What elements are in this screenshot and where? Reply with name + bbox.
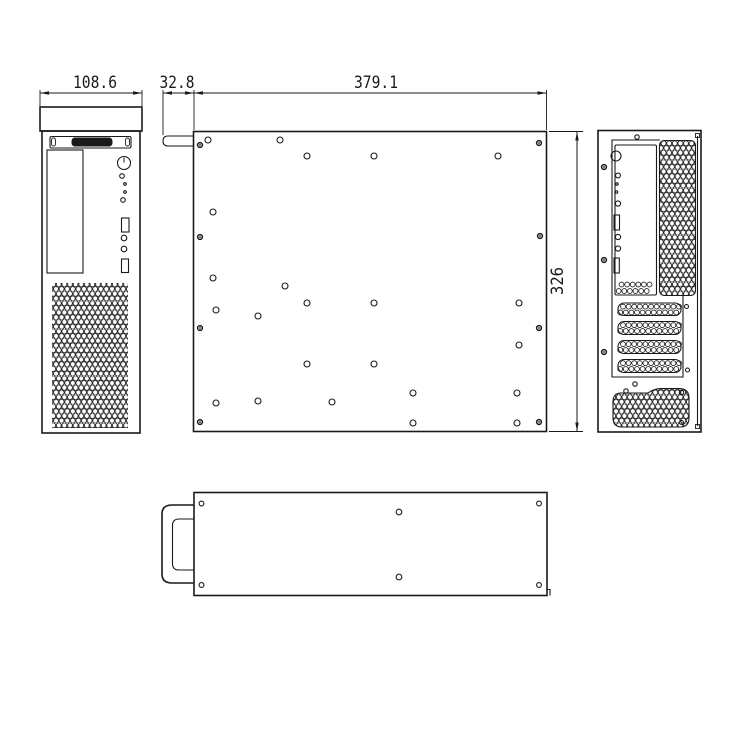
slot-vent-hole xyxy=(646,367,651,372)
slot-vent-hole xyxy=(663,310,668,315)
io-vent-hole xyxy=(625,282,630,287)
dimension-arrow xyxy=(133,91,142,94)
slot-vent-hole xyxy=(668,348,673,353)
chassis-orthographic-drawing: DIVAR108.632.8379.1326 xyxy=(0,0,750,750)
slot-vent-hole xyxy=(657,310,662,315)
slot-vent-hole xyxy=(649,323,654,328)
slot-vent-hole xyxy=(674,367,679,372)
slot-vent-hole xyxy=(629,348,634,353)
io-connector-cutout xyxy=(615,234,620,239)
slot-vent-hole xyxy=(654,342,659,347)
mounting-hole xyxy=(304,300,310,306)
slot-vent-hole xyxy=(651,329,656,334)
dimension-arrow xyxy=(575,132,578,141)
rivet-center xyxy=(199,144,201,146)
slot-vent-hole xyxy=(629,310,634,315)
dimension: 379.1 xyxy=(194,73,547,130)
slot-vent-hole xyxy=(663,329,668,334)
slot-vent-hole xyxy=(623,310,628,315)
dimension: 108.6 xyxy=(40,73,142,106)
io-panel xyxy=(615,145,657,295)
rivet-center xyxy=(199,327,201,329)
slot-vent-hole xyxy=(623,367,628,372)
rivet-center xyxy=(603,259,605,261)
io-vent-hole xyxy=(647,282,652,287)
mounting-hole xyxy=(210,275,216,281)
slot-vent-hole xyxy=(674,310,679,315)
mounting-hole xyxy=(514,420,520,426)
io-connector-cutout xyxy=(615,246,620,251)
slot-vent-hole xyxy=(629,329,634,334)
rivet-center xyxy=(199,421,201,423)
usb-port xyxy=(122,259,129,273)
carry-handle-outer xyxy=(162,505,194,583)
mounting-hole xyxy=(210,209,216,215)
slot-vent-hole xyxy=(660,342,665,347)
slot-vent-hole xyxy=(643,304,648,309)
slot-screw-hole xyxy=(685,305,689,309)
mounting-hole xyxy=(329,399,335,405)
slot-vent-hole xyxy=(665,342,670,347)
dimension: 326 xyxy=(548,132,583,432)
dimension-arrow xyxy=(194,91,203,94)
mounting-hole xyxy=(213,400,219,406)
slot-vent-hole xyxy=(640,348,645,353)
slot-vent-hole xyxy=(660,361,665,366)
slot-vent-hole xyxy=(637,323,642,328)
slot-vent-hole xyxy=(651,348,656,353)
slot-vent-hole xyxy=(663,367,668,372)
slot-vent-hole xyxy=(671,304,676,309)
slot-vent-hole xyxy=(623,348,628,353)
dimension-label: 32.8 xyxy=(160,73,195,93)
mounting-hole xyxy=(304,153,310,159)
slot-vent-hole xyxy=(646,348,651,353)
mounting-hole xyxy=(255,313,261,319)
bottom-view xyxy=(162,493,550,596)
slot-vent-hole xyxy=(643,342,648,347)
led-indicator xyxy=(121,246,127,252)
slot-vent-hole xyxy=(646,329,651,334)
slot-vent-hole xyxy=(649,304,654,309)
slot-vent-hole xyxy=(663,348,668,353)
dimension-arrow xyxy=(538,91,547,94)
mounting-hole xyxy=(255,398,261,404)
slot-vent-hole xyxy=(671,342,676,347)
io-vent-hole xyxy=(622,289,627,294)
slot-vent-hole xyxy=(621,304,626,309)
io-connector-cutout xyxy=(615,201,620,206)
slot-vent-hole xyxy=(657,367,662,372)
dimension-arrow xyxy=(575,423,578,432)
slot-vent-hole xyxy=(671,361,676,366)
screw-hole xyxy=(635,135,639,139)
mounting-hole xyxy=(495,153,501,159)
io-vent-hole xyxy=(636,282,641,287)
slot-vent-hole xyxy=(657,329,662,334)
mounting-hole xyxy=(410,420,416,426)
carry-handle-inner xyxy=(173,519,195,570)
rear-view xyxy=(598,131,701,433)
slot-vent-hole xyxy=(654,304,659,309)
slot-vent-hole xyxy=(651,310,656,315)
slot-vent-hole xyxy=(649,342,654,347)
slot-vent-hole xyxy=(626,323,631,328)
dimension-label: 379.1 xyxy=(354,73,398,93)
slot-vent-hole xyxy=(665,304,670,309)
mounting-hole xyxy=(396,574,402,580)
io-vent-hole xyxy=(642,282,647,287)
dimension-label: 326 xyxy=(548,267,568,295)
io-connector-cutout xyxy=(616,173,621,178)
io-vent-hole xyxy=(639,289,644,294)
led-indicator xyxy=(124,191,127,194)
mounting-hole xyxy=(205,137,211,143)
mounting-hole xyxy=(516,300,522,306)
io-vent-hole xyxy=(619,282,624,287)
mounting-hole xyxy=(514,390,520,396)
slot-vent-hole xyxy=(643,361,648,366)
slot-vent-hole xyxy=(660,323,665,328)
slot-vent-hole xyxy=(637,342,642,347)
slot-vent-hole xyxy=(635,310,640,315)
brand-logo-text: DIVAR xyxy=(76,139,108,147)
slot-vent-hole xyxy=(635,367,640,372)
mounting-hole xyxy=(516,342,522,348)
slot-vent-hole xyxy=(621,323,626,328)
slot-vent-hole xyxy=(637,304,642,309)
rivet-center xyxy=(199,236,201,238)
front-view: DIVAR xyxy=(40,107,142,433)
io-vent-hole xyxy=(628,289,633,294)
led-indicator xyxy=(121,198,126,203)
slot-vent-hole xyxy=(626,361,631,366)
slot-screw-hole xyxy=(686,368,690,372)
mounting-hole xyxy=(304,361,310,367)
led-indicator xyxy=(120,174,125,179)
slot-vent-hole xyxy=(632,304,637,309)
slot-vent-hole xyxy=(632,361,637,366)
slot-vent-hole xyxy=(651,367,656,372)
mounting-hole xyxy=(371,361,377,367)
slot-vent-hole xyxy=(668,367,673,372)
handle-tab xyxy=(163,136,194,146)
slot-vent-hole xyxy=(674,348,679,353)
slot-vent-hole xyxy=(637,361,642,366)
slot-vent-hole xyxy=(660,304,665,309)
led-indicator xyxy=(121,235,127,241)
io-connector-cutout xyxy=(615,191,617,193)
rivet-center xyxy=(603,166,605,168)
slot-vent-hole xyxy=(654,361,659,366)
slot-vent-hole xyxy=(640,329,645,334)
slot-vent-hole xyxy=(654,323,659,328)
side-panel xyxy=(194,132,547,432)
dimension-label: 108.6 xyxy=(73,73,117,93)
rear-vent-grille xyxy=(660,141,696,296)
corner-screw-hole xyxy=(537,501,542,506)
slot-vent-hole xyxy=(665,323,670,328)
drawing-sheet: DIVAR108.632.8379.1326 xyxy=(0,0,750,750)
led-indicator xyxy=(124,183,127,186)
slot-vent-hole xyxy=(626,304,631,309)
slot-vent-hole xyxy=(623,329,628,334)
slot-vent-hole xyxy=(668,329,673,334)
screw-hole xyxy=(633,382,637,386)
front-vent-grille xyxy=(52,283,128,428)
rivet-center xyxy=(603,351,605,353)
usb-port xyxy=(122,218,130,232)
side-view xyxy=(163,132,547,432)
io-vent-hole xyxy=(630,282,635,287)
bottom-panel xyxy=(194,493,547,596)
dimension: 32.8 xyxy=(160,73,195,135)
mounting-hole xyxy=(396,509,402,515)
slot-vent-hole xyxy=(665,361,670,366)
slot-vent-hole xyxy=(640,367,645,372)
front-top-cap xyxy=(40,107,142,131)
mounting-hole xyxy=(282,283,288,289)
mounting-hole xyxy=(213,307,219,313)
logo-strip-bracket xyxy=(126,138,130,146)
io-connector-cutout xyxy=(616,183,618,185)
io-vent-hole xyxy=(633,289,638,294)
slot-vent-hole xyxy=(649,361,654,366)
corner-screw-hole xyxy=(199,583,204,588)
slot-vent-hole xyxy=(629,367,634,372)
io-vent-hole xyxy=(644,289,649,294)
slot-vent-hole xyxy=(626,342,631,347)
psu-vent xyxy=(613,389,689,428)
slot-vent-hole xyxy=(621,361,626,366)
slot-vent-hole xyxy=(640,310,645,315)
mounting-hole xyxy=(277,137,283,143)
rivet-center xyxy=(539,235,541,237)
slot-vent-hole xyxy=(646,310,651,315)
mounting-hole xyxy=(371,153,377,159)
slot-vent-hole xyxy=(657,348,662,353)
mounting-hole xyxy=(410,390,416,396)
slot-vent-hole xyxy=(643,323,648,328)
slot-vent-hole xyxy=(632,323,637,328)
slot-vent-hole xyxy=(671,323,676,328)
rivet-center xyxy=(538,327,540,329)
drive-bay-cover xyxy=(47,150,83,273)
corner-screw-hole xyxy=(537,583,542,588)
slot-vent-hole xyxy=(668,310,673,315)
slot-vent-hole xyxy=(674,329,679,334)
slot-vent-hole xyxy=(632,342,637,347)
rivet-center xyxy=(538,421,540,423)
io-vent-hole xyxy=(616,289,621,294)
logo-strip-bracket xyxy=(52,138,56,146)
slot-vent-hole xyxy=(635,329,640,334)
slot-vent-hole xyxy=(635,348,640,353)
slot-vent-hole xyxy=(621,342,626,347)
corner-screw-hole xyxy=(199,501,204,506)
dimension-arrow xyxy=(40,91,49,94)
rivet-center xyxy=(538,142,540,144)
mounting-hole xyxy=(371,300,377,306)
